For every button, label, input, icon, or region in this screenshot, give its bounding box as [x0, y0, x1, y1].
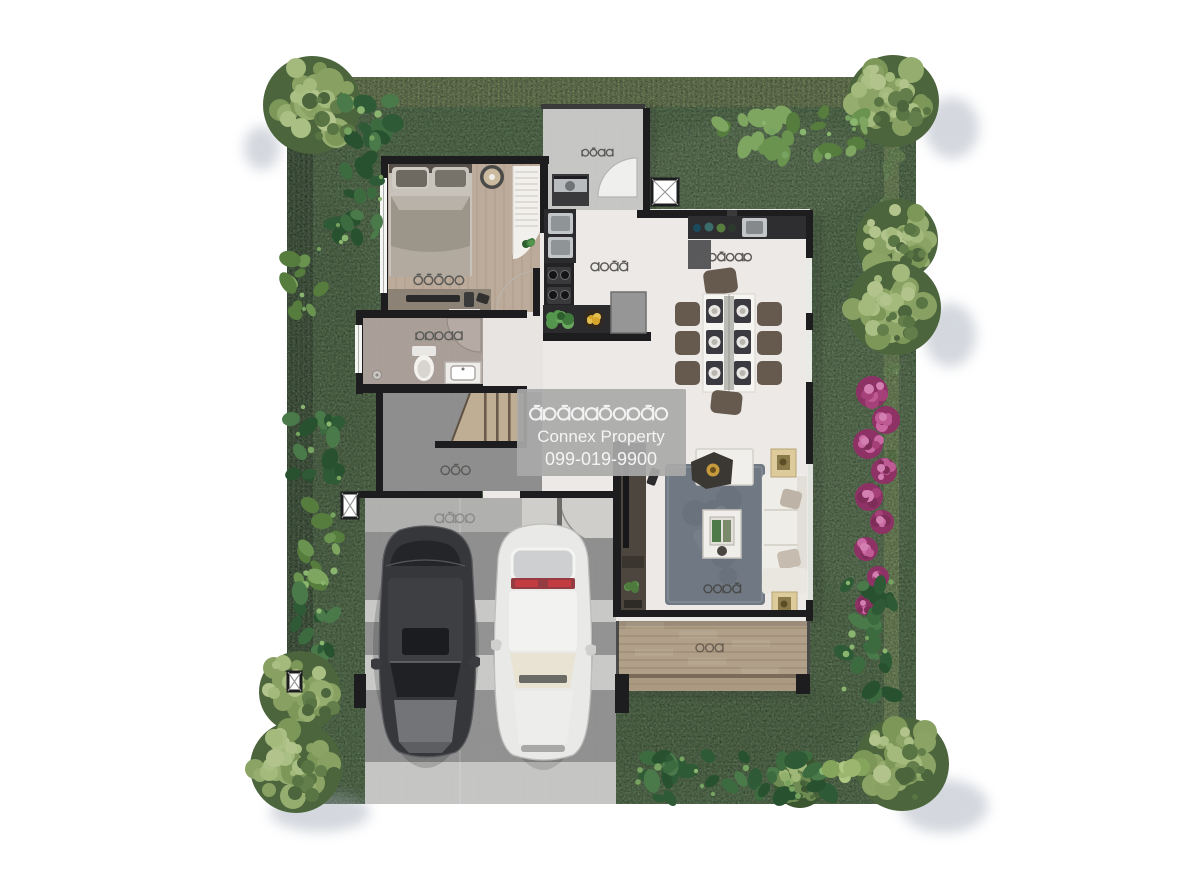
- svg-text:Connex Property: Connex Property: [537, 427, 665, 446]
- svg-text:099-019-9900: 099-019-9900: [545, 449, 657, 469]
